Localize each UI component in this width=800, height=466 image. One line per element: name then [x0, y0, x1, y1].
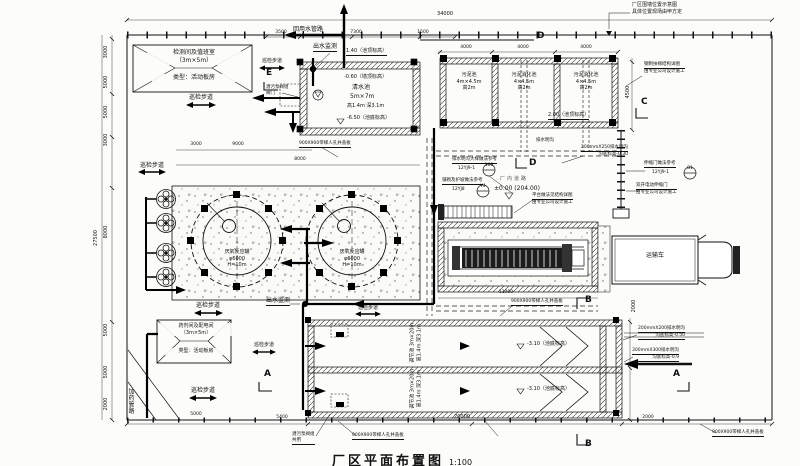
- road-label: 厂内道路: [500, 176, 528, 183]
- cw-size: 5m×7m: [350, 93, 374, 101]
- ditch-300-note: 300mmX300排水明沟 沟底标高-0.9: [632, 348, 679, 362]
- dim-4500: 4500: [625, 79, 631, 105]
- section-d: D: [537, 31, 544, 43]
- section-a: A: [673, 369, 680, 381]
- reactor-left-label: 厌氧反应罐 φ6000 H=10m: [207, 249, 267, 269]
- dim-4000: 4000: [460, 45, 471, 51]
- paving-ref: 12YJ8: [452, 187, 465, 193]
- dim-3500: 3500: [275, 30, 286, 36]
- regulating-tank-2-label: 调节池 3m×20m 高1.4m 深3.1m: [409, 356, 423, 422]
- dim-5000: 5000: [190, 412, 201, 418]
- ditch-detail-num: 100: [485, 163, 494, 169]
- cw-top-elevation: 1.40（池顶标高）: [346, 48, 387, 56]
- dim-8000: 8000: [294, 157, 305, 163]
- reuse-water-pipe-label: 回用水管路: [293, 26, 323, 35]
- title-text: 厂区平面布置图: [332, 454, 444, 466]
- regulating-elev-1: -3.10（池底标高）: [527, 341, 570, 348]
- paving-num: Y4: [480, 184, 486, 190]
- sludge-top-elevation: 2.00（池顶标高）: [548, 112, 589, 120]
- monitor-room-label: 检测间及值班室 （3m×5m）: [147, 49, 241, 65]
- monitor-room-type: 类型：活动板房: [152, 74, 236, 82]
- valve-group-label: 潜污泵阀组 共用: [292, 432, 315, 445]
- section-b: B: [585, 439, 592, 451]
- ditch-250-note: 200mmX250排水明沟 沟底标高-0.30: [581, 145, 628, 158]
- dim-left-3000: 3000: [103, 127, 109, 153]
- dim-left-5000: 5000: [103, 69, 109, 95]
- cw-bottom-elevation: -6.50（池底标高）: [347, 115, 390, 122]
- reactor-area: [172, 186, 420, 300]
- chemical-room-label: 药剂间及配电间 （3m×5m）: [160, 323, 232, 336]
- cw-name: 清水池: [352, 84, 370, 92]
- walkway-label: 巡检步道: [254, 342, 274, 349]
- manhole-label: 900X900带梯人孔井盖板: [712, 430, 764, 437]
- drawing-title: 厂区平面布置图1:100: [330, 450, 478, 466]
- gate-ref: 12YJ9-1: [652, 170, 669, 176]
- sludge-tank-3-label: 污泥消化池 4×4.5m 高2m: [564, 72, 608, 92]
- dim-1500: 1500: [417, 30, 428, 36]
- dim-left-2000: 2000: [103, 391, 109, 417]
- ditch-200-note: 200mmX200排水明沟 沟底标高-0.50: [638, 326, 685, 340]
- fence-note: 厂区围墙位置示意图 具体位置现场由甲方定: [632, 2, 682, 15]
- dim-left-5000: 5000: [103, 317, 109, 343]
- filter-press-area: [438, 204, 598, 292]
- gate-num: 81: [687, 166, 693, 172]
- dosing-pipe-label: 加药管路: [126, 388, 135, 414]
- manhole-label: 900X900带梯人孔井盖板: [352, 433, 404, 440]
- reactor-right-label: 厌氧反应罐 φ6000 H=10m: [322, 249, 382, 269]
- transport-truck: [598, 226, 740, 292]
- dim-left-5000: 5000: [103, 359, 109, 385]
- walkway-label: 巡检步道: [140, 162, 164, 170]
- dim-2000: 2000: [631, 293, 637, 319]
- gate-note: 双开电动伸缩门 由专业公司设计施工: [636, 183, 677, 196]
- dim-3000: 3000: [190, 142, 201, 148]
- dim-34000: 34000: [437, 11, 453, 18]
- section-e: E: [266, 68, 272, 80]
- dim-left-8000: 8000: [103, 219, 109, 245]
- dim-4000: 4000: [517, 45, 528, 51]
- valve-group-label: 潜污泵阀组 阀门: [266, 85, 289, 98]
- dim-2000: 2000: [642, 415, 653, 421]
- outflow-monitor-label: 出水监测: [266, 297, 290, 306]
- truck-label: 运输车: [646, 252, 664, 260]
- platform-note: 平台做法见结构详图 由专业公司设计施工: [532, 193, 573, 206]
- dim-7300: 7300: [350, 30, 361, 36]
- dim-left-5000: 5000: [103, 99, 109, 125]
- retractable-gate: [613, 130, 629, 218]
- dim-9000: 9000: [232, 142, 243, 148]
- dim-left-27500: 27500: [93, 225, 99, 251]
- outflow-monitor-label: 出水监测: [313, 43, 337, 52]
- cw-dims: 高1.4m 深3.1m: [347, 103, 384, 110]
- cw-wall-elevation: -0.60（墙顶标高）: [344, 74, 387, 81]
- ditch-detail-ref: 12YJ9-1: [458, 166, 475, 172]
- walkway-label: 巡检步道: [196, 302, 220, 310]
- sludge-tank-1-label: 污泥池 4m×4.5m 高2m: [447, 72, 491, 92]
- dim-20000: 20000: [454, 414, 470, 421]
- manhole-label: 900X900带梯人孔井盖板: [511, 299, 563, 306]
- dim-4000: 4000: [580, 45, 591, 51]
- walkway-label: 巡检步道: [262, 58, 282, 65]
- walkway-label: 巡检步道: [191, 387, 215, 395]
- sludge-tanks: [440, 55, 618, 152]
- plant-layout-drawing: 厂区平面布置图1:100 检测间及值班室 （3m×5m） 类型：活动板房 药剂间…: [0, 0, 800, 466]
- section-c: C: [641, 97, 648, 109]
- walkway-label: 巡检步道: [358, 305, 378, 312]
- ladder-note: 钢制扶梯结构详图 由专业公司设计施工: [644, 62, 685, 75]
- dim-11000: 11000: [499, 290, 513, 296]
- section-b: B: [585, 295, 592, 307]
- walkway-label: 巡检步道: [189, 94, 213, 102]
- manhole-label: 900X900带梯人孔井盖板: [299, 141, 351, 148]
- regulating-elev-2: -3.10（池底标高）: [527, 386, 570, 393]
- sludge-tank-2-label: 污泥消化池 4×4.5m 高2m: [502, 72, 546, 92]
- title-scale: 1:100: [449, 458, 472, 466]
- dim-left-3000: 3000: [103, 39, 109, 65]
- paving-note: 铺砌及护坡做法参考: [442, 178, 483, 185]
- road-elevation: ±0.00 (204.00): [494, 185, 540, 193]
- dim-5400: 5400: [276, 415, 287, 421]
- section-a: A: [264, 369, 271, 381]
- gate-ref-note: 伸缩门做法参考: [644, 161, 676, 168]
- section-d: D: [529, 158, 536, 170]
- ditch-small-label: 排水明沟: [536, 138, 554, 144]
- chemical-room-type: 类型：活动板房: [163, 348, 229, 355]
